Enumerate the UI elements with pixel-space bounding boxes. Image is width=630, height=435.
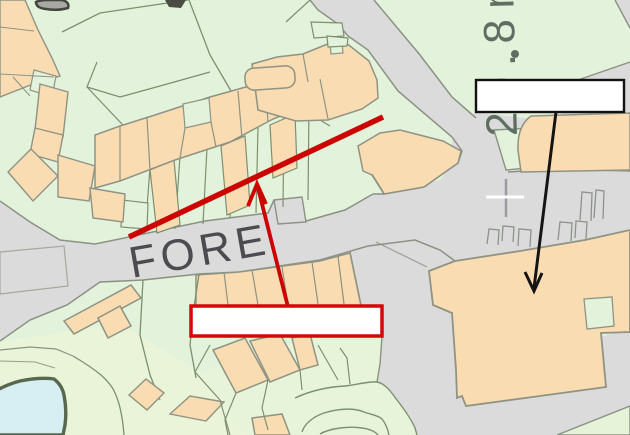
svg-text:20.8m: 20.8m bbox=[473, 0, 527, 137]
